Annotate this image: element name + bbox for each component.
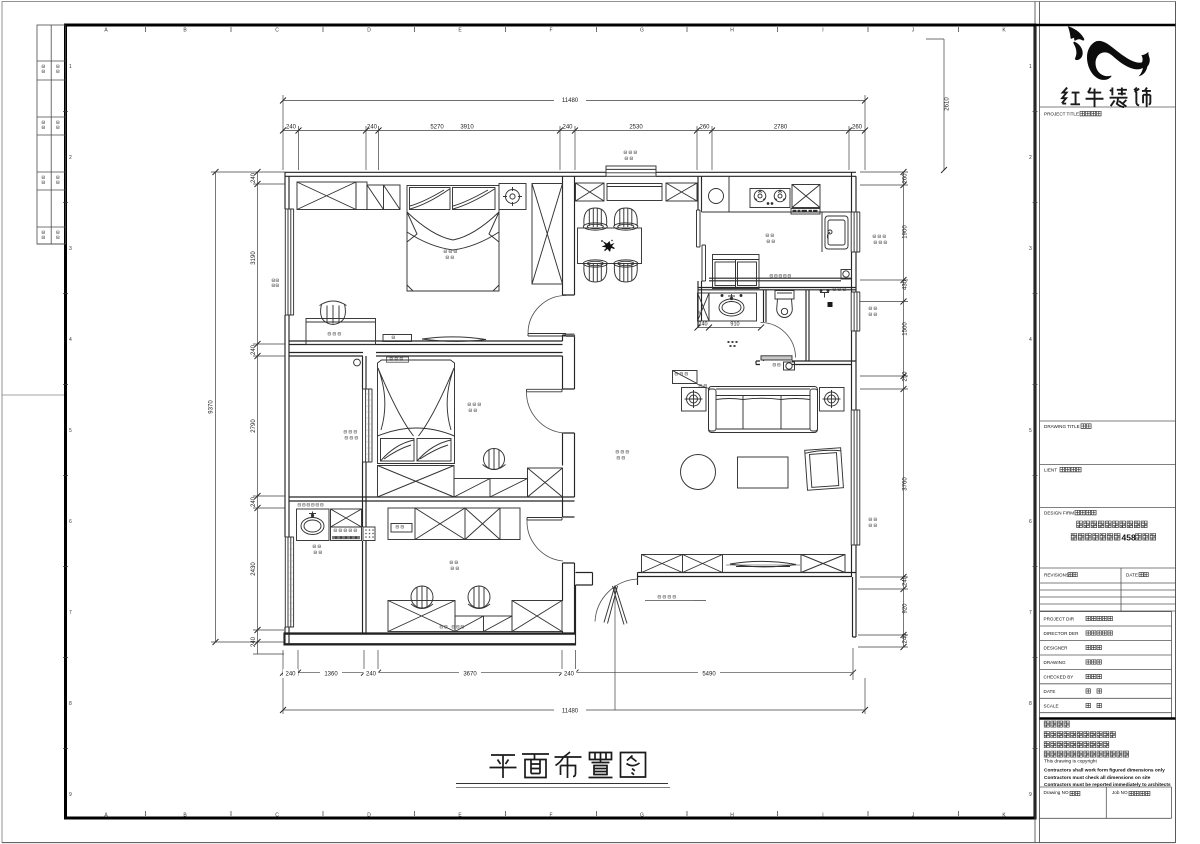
svg-text:11480: 11480 <box>562 98 579 104</box>
svg-text:1360: 1360 <box>324 671 338 677</box>
svg-text:240: 240 <box>903 575 909 586</box>
svg-text:240: 240 <box>285 671 296 677</box>
svg-text:G: G <box>640 813 644 819</box>
svg-text:3: 3 <box>1029 246 1032 252</box>
svg-text:240: 240 <box>251 172 257 183</box>
svg-text:910: 910 <box>730 322 739 328</box>
svg-text:2: 2 <box>69 155 72 161</box>
svg-text:260: 260 <box>903 173 909 184</box>
svg-text:This drawing is copyright: This drawing is copyright <box>1044 759 1097 765</box>
svg-text:G: G <box>640 28 644 34</box>
svg-text:I: I <box>822 813 823 819</box>
svg-text:2790: 2790 <box>251 419 257 433</box>
svg-text:E: E <box>458 28 462 34</box>
svg-text:2530: 2530 <box>629 125 643 131</box>
svg-text:I: I <box>822 28 823 34</box>
svg-text:260: 260 <box>699 125 710 131</box>
svg-text:240: 240 <box>366 671 377 677</box>
svg-text:CHECKED BY: CHECKED BY <box>1044 675 1074 680</box>
svg-text:DESIGN FIRM: DESIGN FIRM <box>1044 511 1074 516</box>
svg-text:C: C <box>275 28 279 34</box>
svg-text:458: 458 <box>1122 533 1136 543</box>
svg-text:430: 430 <box>903 279 909 290</box>
svg-text:2430: 2430 <box>251 562 257 576</box>
svg-text:240: 240 <box>251 344 257 355</box>
svg-text:DESIGNER: DESIGNER <box>1044 646 1069 651</box>
svg-text:A: A <box>104 28 108 34</box>
svg-text:Job NO: Job NO <box>1112 790 1128 795</box>
svg-text:Contractors shall work form fi: Contractors shall work form figured dime… <box>1044 768 1165 774</box>
svg-text:5270: 5270 <box>430 125 444 131</box>
svg-text:240: 240 <box>286 125 297 131</box>
svg-text:DRAWING TITLE: DRAWING TITLE <box>1044 424 1080 429</box>
svg-text:260: 260 <box>852 125 863 131</box>
svg-text:5: 5 <box>1029 428 1032 434</box>
svg-text:7: 7 <box>1029 610 1032 616</box>
svg-text:240: 240 <box>903 633 909 644</box>
svg-text:9: 9 <box>1029 792 1032 798</box>
svg-text:9: 9 <box>69 792 72 798</box>
svg-text:240: 240 <box>564 671 575 677</box>
svg-text:SCALE: SCALE <box>1044 704 1059 709</box>
svg-text:9370: 9370 <box>209 400 215 414</box>
svg-text:DRAWING: DRAWING <box>1044 660 1066 665</box>
svg-text:240: 240 <box>562 125 573 131</box>
svg-text:H: H <box>730 28 734 34</box>
svg-text:5490: 5490 <box>702 671 716 677</box>
svg-text:4: 4 <box>1029 337 1032 343</box>
svg-text:2610: 2610 <box>945 97 951 111</box>
svg-text:920: 920 <box>903 603 909 614</box>
svg-text:1900: 1900 <box>903 225 909 239</box>
svg-text:DATE: DATE <box>1044 689 1056 694</box>
svg-text:LIENT: LIENT <box>1044 468 1057 473</box>
svg-text:PROJECT TITLE: PROJECT TITLE <box>1044 112 1079 117</box>
svg-text:6: 6 <box>69 519 72 525</box>
svg-text:1: 1 <box>69 64 72 70</box>
svg-text:8: 8 <box>69 701 72 707</box>
svg-text:F: F <box>549 813 552 819</box>
svg-text:4: 4 <box>69 337 72 343</box>
svg-text:PROJECT DIR: PROJECT DIR <box>1044 617 1075 622</box>
svg-text:6: 6 <box>1029 519 1032 525</box>
svg-text:7: 7 <box>69 610 72 616</box>
svg-text:3: 3 <box>69 246 72 252</box>
svg-text:2780: 2780 <box>774 125 788 131</box>
svg-text:Contractors must be reported i: Contractors must be reported immediately… <box>1044 782 1171 788</box>
svg-text:1: 1 <box>1029 64 1032 70</box>
svg-text:DIRECTOR DER: DIRECTOR DER <box>1044 631 1080 636</box>
svg-text:240: 240 <box>367 125 378 131</box>
svg-text:2: 2 <box>1029 155 1032 161</box>
svg-text:250: 250 <box>903 371 909 382</box>
svg-text:D: D <box>367 28 371 34</box>
svg-text:5: 5 <box>69 428 72 434</box>
svg-text:J: J <box>912 28 915 34</box>
svg-text:240: 240 <box>698 322 707 328</box>
svg-text:240: 240 <box>251 496 257 507</box>
svg-text:1500: 1500 <box>903 322 909 336</box>
svg-text:11480: 11480 <box>562 709 579 715</box>
svg-text:3190: 3190 <box>251 251 257 265</box>
svg-text:8: 8 <box>1029 701 1032 707</box>
svg-text:240: 240 <box>251 636 257 647</box>
svg-text:K: K <box>1002 28 1006 34</box>
svg-text:C: C <box>275 813 279 819</box>
svg-text:Drawing NO: Drawing NO <box>1044 790 1069 795</box>
svg-text:Contractors must check all dim: Contractors must check all dimensions on… <box>1044 775 1151 781</box>
svg-text:REVISIONS: REVISIONS <box>1044 573 1069 578</box>
svg-text:H: H <box>730 813 734 819</box>
svg-text:3670: 3670 <box>463 671 477 677</box>
svg-text:D: D <box>367 813 371 819</box>
svg-text:3910: 3910 <box>460 125 474 131</box>
svg-text:B: B <box>183 28 187 34</box>
svg-text:3760: 3760 <box>903 477 909 491</box>
svg-text:F: F <box>549 28 552 34</box>
svg-text:DATE: DATE <box>1126 573 1138 578</box>
